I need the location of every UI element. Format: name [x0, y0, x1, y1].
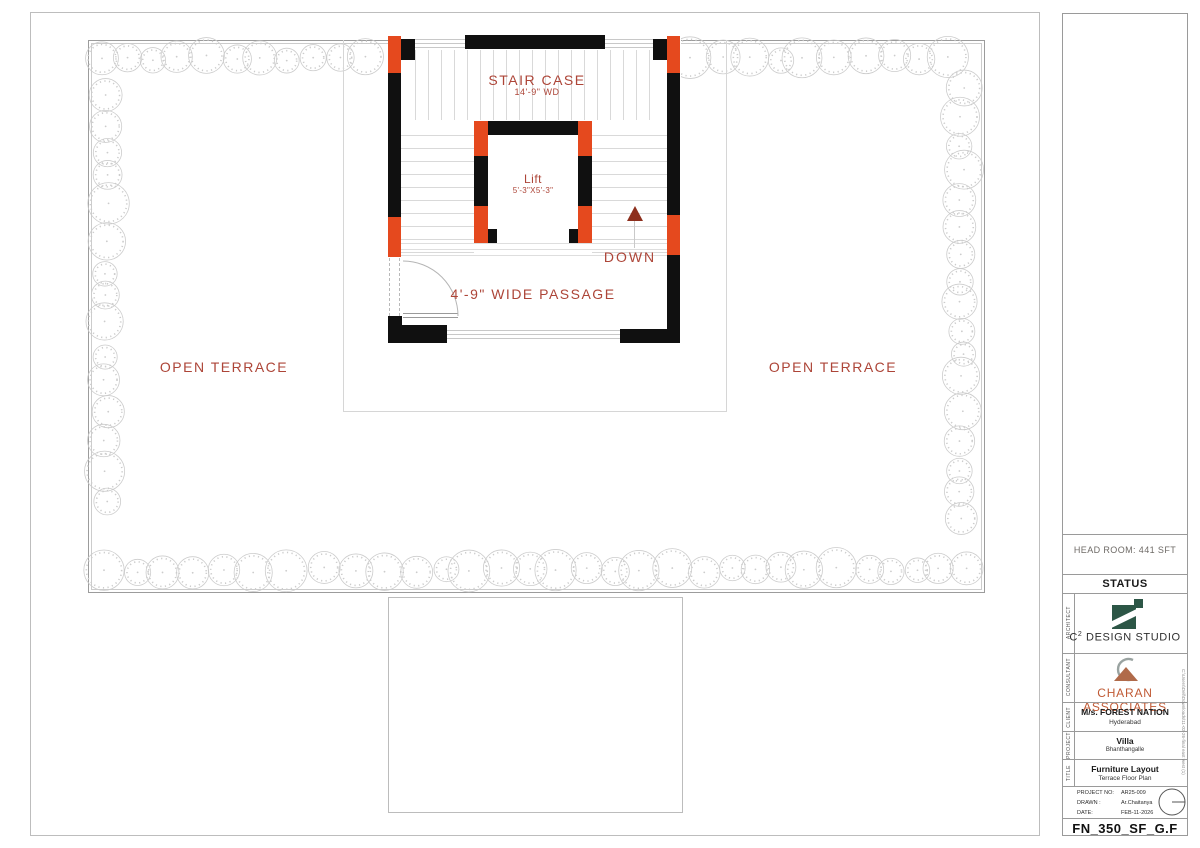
wall-segment: [401, 39, 415, 60]
date-label: DATE:: [1077, 810, 1093, 816]
wall-segment: [653, 39, 667, 60]
lift-column: [474, 121, 488, 156]
open-terrace-right-label: OPEN TERRACE: [738, 359, 928, 375]
architect-firm-name: C2 DESIGN STUDIO: [1063, 631, 1187, 644]
column-segment: [667, 215, 680, 255]
wall-segment: [620, 329, 680, 343]
stair-treads-right-flight: [592, 135, 667, 253]
wall-segment: [388, 316, 402, 343]
lift-wall: [474, 156, 488, 206]
lift-door-jamb: [488, 229, 497, 243]
lift-label: Lift: [488, 172, 578, 186]
window-top-right: [605, 39, 653, 51]
window-top-left: [415, 39, 465, 51]
date-value: FEB-11-2026: [1121, 810, 1153, 816]
stair-treads-left-flight: [401, 135, 474, 253]
status-label: STATUS: [1063, 578, 1187, 590]
down-label: DOWN: [595, 249, 665, 265]
window-bottom: [447, 330, 620, 342]
client-city: Hyderabad: [1063, 719, 1187, 726]
stair-case-label: STAIR CASE: [457, 72, 617, 88]
lower-floor-outline: [388, 597, 683, 813]
stair-case-dim: 14'-9" WD: [457, 87, 617, 97]
project-no-value: AR25-009: [1121, 790, 1146, 796]
wall-segment: [388, 73, 401, 217]
lift-column: [578, 121, 592, 156]
divider: [1063, 759, 1187, 760]
project-no-label: PROJECT NO:: [1077, 790, 1114, 796]
lift-wall: [488, 121, 578, 135]
wall-segment: [402, 325, 447, 343]
wall-segment: [667, 73, 680, 215]
divider: [1063, 534, 1187, 535]
c2-design-studio-logo: [1106, 597, 1146, 633]
column-segment: [388, 36, 401, 73]
lift-column: [578, 206, 592, 243]
drawn-value: Ar.Chaitanya: [1121, 800, 1153, 806]
title-block: HEAD ROOM: 441 SFT STATUS ARCHITECT C2 D…: [1062, 13, 1188, 836]
column-segment: [667, 36, 680, 73]
wall-segment: [465, 35, 605, 49]
lift-wall: [578, 156, 592, 206]
divider: [1063, 593, 1187, 594]
down-arrow-icon: [627, 206, 643, 221]
down-guide-line: [634, 221, 635, 248]
file-path-text: C:\Users\Dell\Downloads\11-02-26-final e…: [1181, 669, 1190, 819]
charan-associates-logo: [1107, 654, 1145, 688]
drawing-sheet: STAIR CASE 14'-9" WD Lift 5'-3"X5'-3" DO…: [0, 0, 1200, 848]
open-terrace-left-label: OPEN TERRACE: [129, 359, 319, 375]
divider: [1063, 731, 1187, 732]
project-location: Bhanthangalle: [1063, 747, 1187, 753]
divider: [1063, 702, 1187, 703]
column-segment: [388, 217, 401, 257]
drawn-label: DRAWN :: [1077, 800, 1101, 806]
drawn-row: DRAWN : Ar.Chaitanya: [1077, 800, 1167, 809]
lift-door-jamb: [569, 229, 578, 243]
client-name: M/s. FOREST NATION: [1063, 707, 1187, 717]
divider: [1063, 818, 1187, 819]
sheet-subtitle: Terrace Floor Plan: [1063, 775, 1187, 782]
divider: [1063, 574, 1187, 575]
lift-column: [474, 206, 488, 243]
passage-label: 4'-9" WIDE PASSAGE: [418, 286, 648, 302]
head-room-text: HEAD ROOM: 441 SFT: [1063, 545, 1187, 555]
project-no-row: PROJECT NO: AR25-009: [1077, 790, 1167, 799]
project-name: Villa: [1063, 736, 1187, 746]
drawing-number: FN_350_SF_G.F: [1063, 821, 1187, 836]
lift-dim: 5'-3"X5'-3": [488, 186, 578, 195]
sheet-title: Furniture Layout: [1063, 764, 1187, 774]
